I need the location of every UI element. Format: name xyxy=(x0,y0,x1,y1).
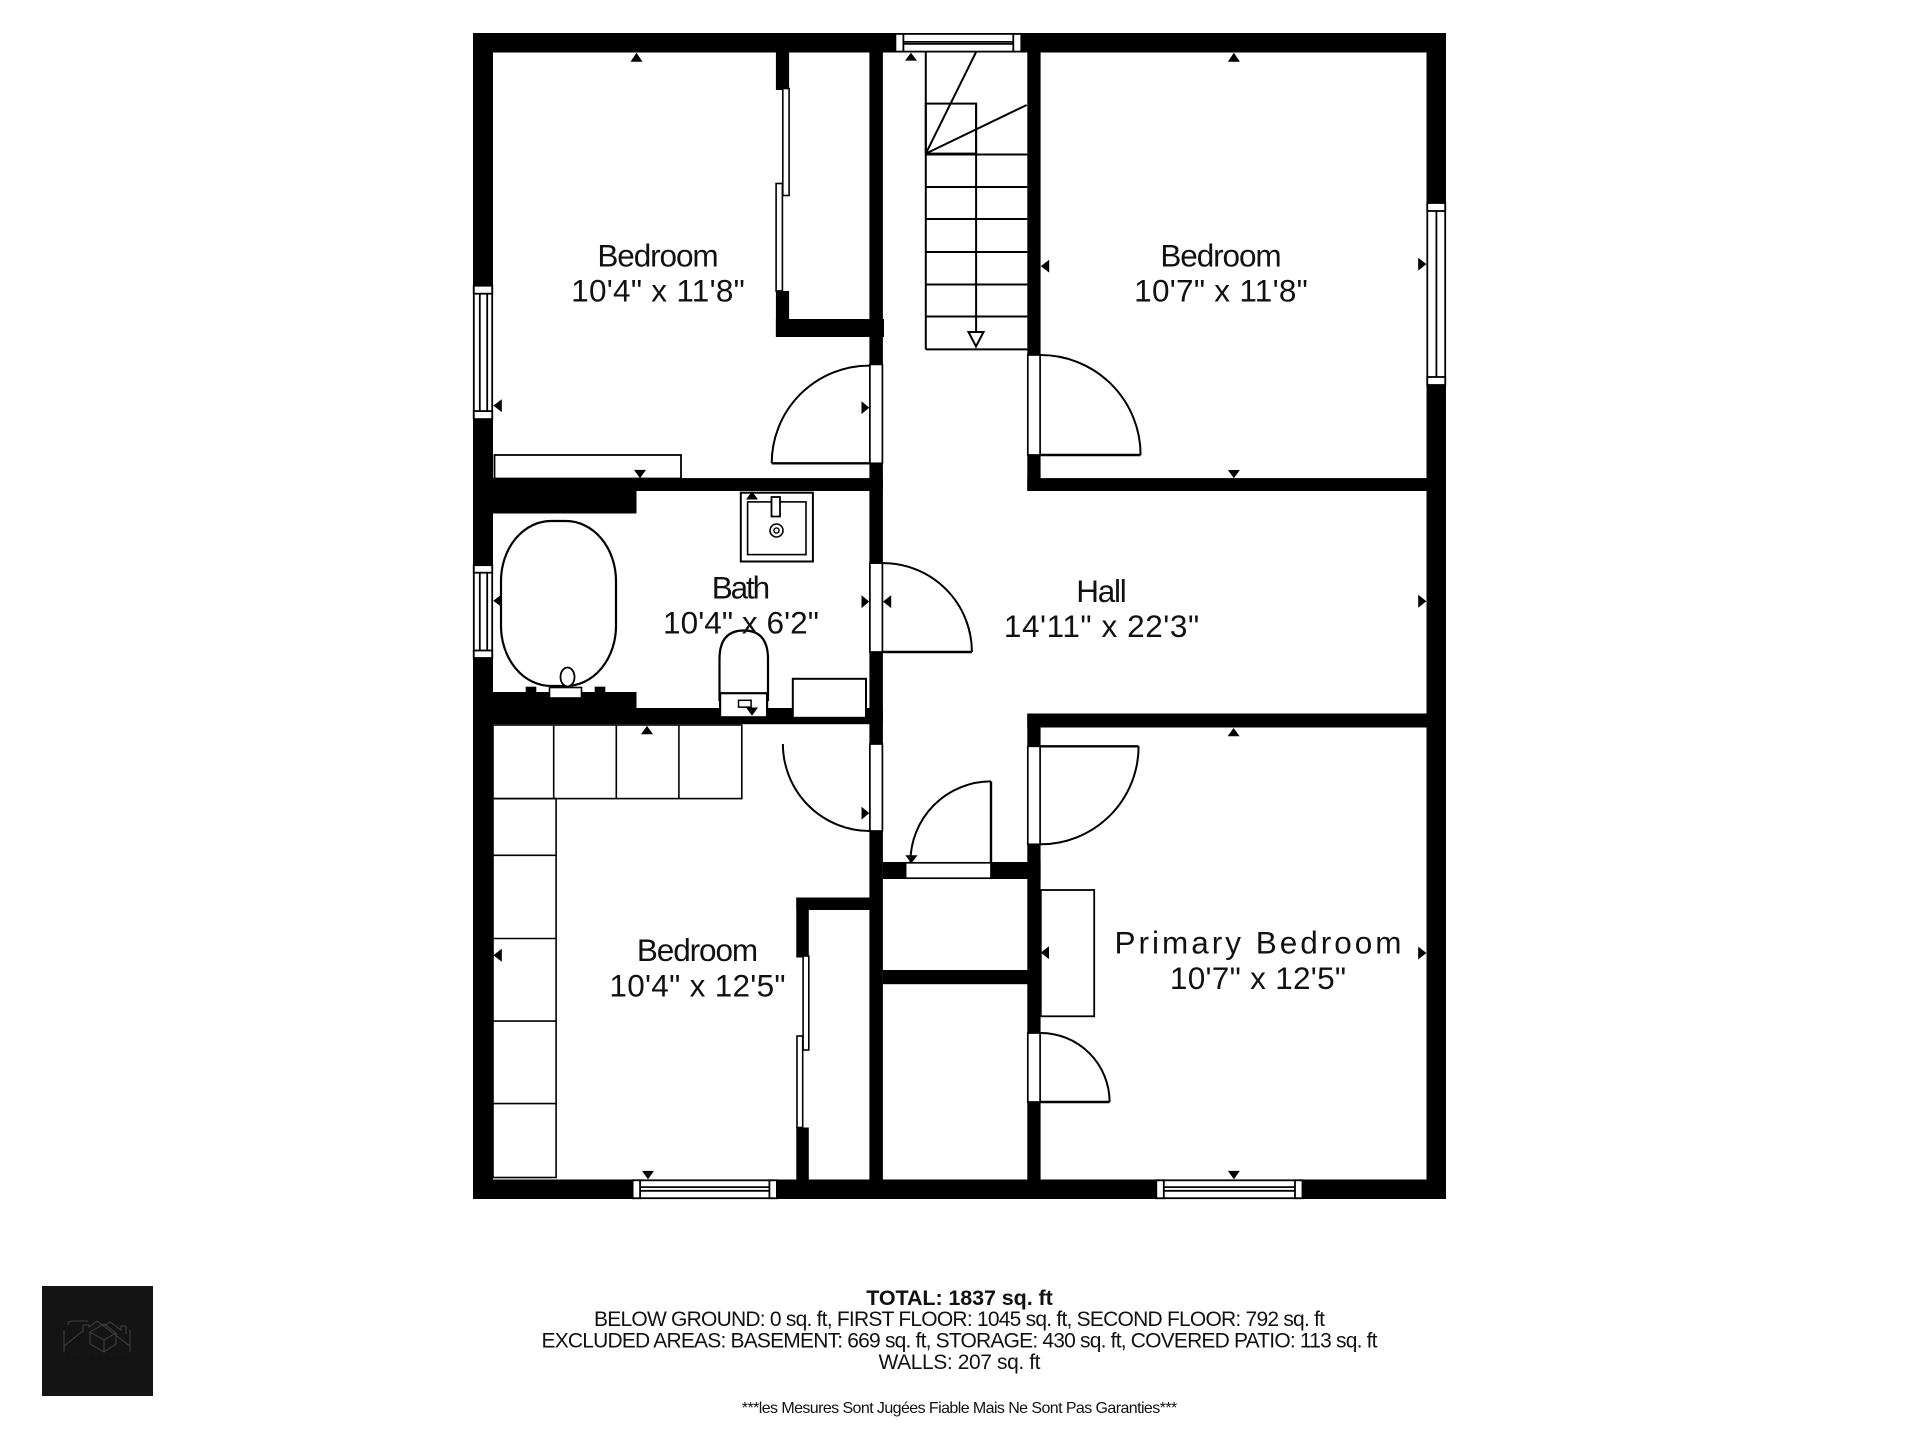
svg-text:10'4" x 6'2": 10'4" x 6'2" xyxy=(663,605,819,641)
svg-text:TOTAL: 1837 sq. ft: TOTAL: 1837 sq. ft xyxy=(866,1286,1053,1310)
svg-text:Bath: Bath xyxy=(712,570,770,606)
svg-text:EXCLUDED AREAS: BASEMENT: 669: EXCLUDED AREAS: BASEMENT: 669 sq. ft, ST… xyxy=(542,1330,1378,1353)
svg-text:10'7" x 12'5": 10'7" x 12'5" xyxy=(1170,960,1346,996)
svg-text:WALLS: 207 sq. ft: WALLS: 207 sq. ft xyxy=(879,1351,1041,1374)
svg-text:14'11" x 22'3": 14'11" x 22'3" xyxy=(1004,608,1199,644)
svg-text:***les Mesures Sont Jugées Fia: ***les Mesures Sont Jugées Fiable Mais N… xyxy=(742,1400,1177,1417)
svg-text:Bedroom: Bedroom xyxy=(1160,237,1281,273)
svg-text:Bedroom: Bedroom xyxy=(597,237,718,273)
svg-text:Primary Bedroom: Primary Bedroom xyxy=(1115,925,1402,961)
svg-text:PHOTOS VERA: PHOTOS VERA xyxy=(66,1355,129,1362)
svg-text:Bedroom: Bedroom xyxy=(637,932,758,968)
svg-text:Hall: Hall xyxy=(1076,573,1127,609)
svg-text:10'7" x 11'8": 10'7" x 11'8" xyxy=(1134,272,1308,308)
svg-text:10'4" x 11'8": 10'4" x 11'8" xyxy=(571,272,745,308)
svg-text:10'4" x 12'5": 10'4" x 12'5" xyxy=(609,968,785,1004)
svg-text:BELOW GROUND: 0 sq. ft, FIRST: BELOW GROUND: 0 sq. ft, FIRST FLOOR: 104… xyxy=(594,1308,1325,1331)
